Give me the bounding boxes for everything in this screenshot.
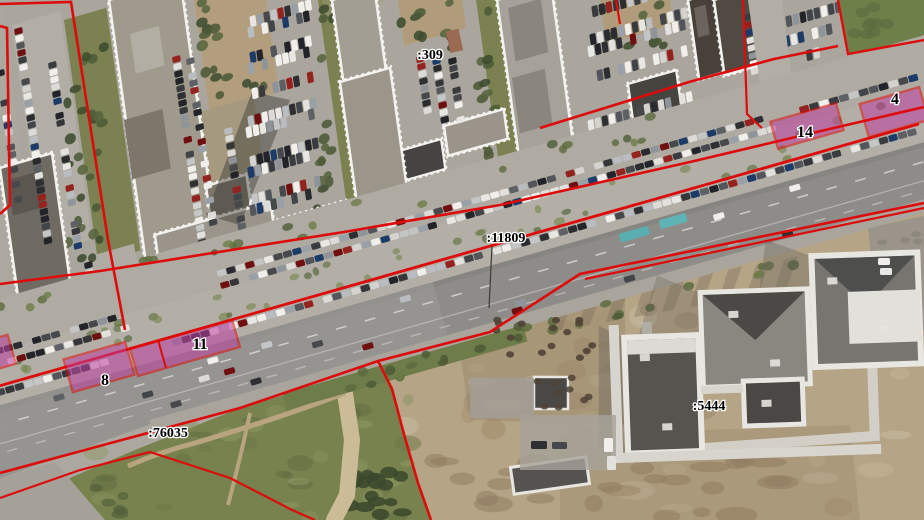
svg-text:11: 11 bbox=[192, 336, 207, 353]
svg-text::5444: :5444 bbox=[693, 399, 726, 414]
svg-text:8: 8 bbox=[101, 372, 109, 389]
svg-text:14: 14 bbox=[797, 124, 813, 141]
svg-text::309: :309 bbox=[417, 48, 443, 63]
svg-text:4: 4 bbox=[891, 91, 899, 108]
svg-text::76035: :76035 bbox=[148, 426, 188, 441]
svg-text::11809: :11809 bbox=[487, 231, 526, 246]
